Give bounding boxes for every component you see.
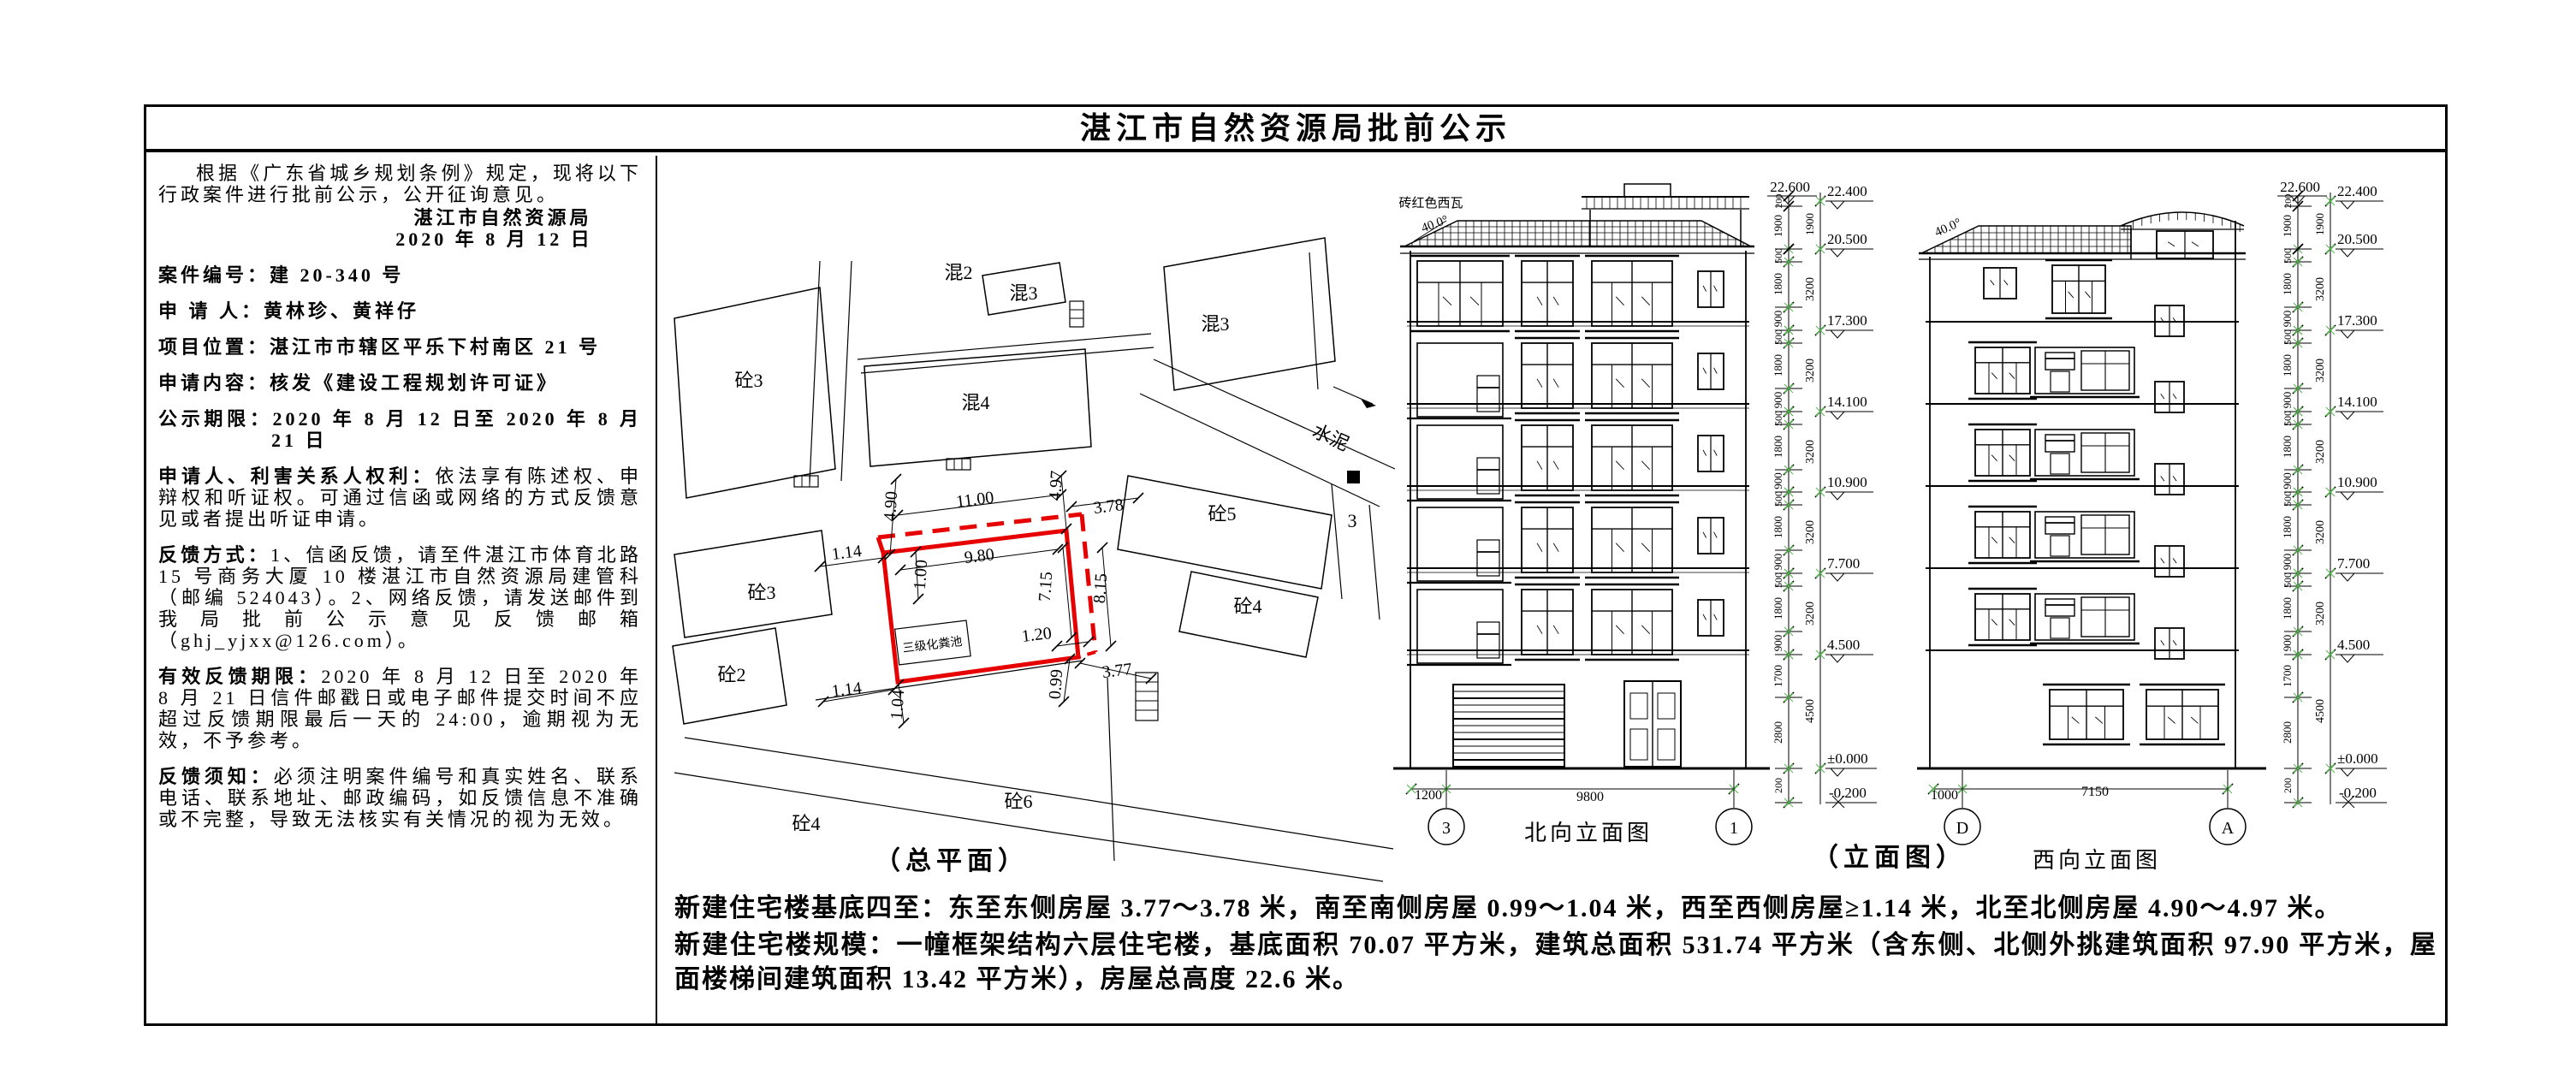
dim-south-west: 1.04 — [887, 689, 908, 720]
para-label: 有效反馈期限： — [158, 666, 321, 687]
announcement-page: { "title": "湛江市自然资源局批前公示", "left_panel":… — [0, 0, 2576, 1091]
bldg-label: 砼4 — [792, 813, 820, 834]
dim-west-inner: 1.00 — [911, 559, 931, 590]
svg-text:900: 900 — [1772, 472, 1784, 489]
notice-text-panel: 根据《广东省城乡规划条例》规定，现将以下行政案件进行批前公示，公开征询意见。 湛… — [146, 156, 657, 1023]
para-label: 反馈方式： — [158, 544, 270, 566]
summary-setbacks-label: 新建住宅楼基底四至： — [674, 894, 948, 922]
svg-text:4.500: 4.500 — [2337, 637, 2370, 653]
svg-text:4500: 4500 — [1804, 699, 1817, 723]
svg-text:500: 500 — [2282, 491, 2294, 507]
svg-text:1800: 1800 — [2281, 436, 2294, 458]
field-value: 湛江市市辖区平乐下村南区 21 号 — [270, 336, 601, 358]
summary-setbacks-text: 东至东侧房屋 3.77～3.78 米，南至南侧房屋 0.99～1.04 米，西至… — [948, 894, 2342, 922]
svg-text:1800: 1800 — [1772, 597, 1784, 620]
field-value: 黄林珍、黄祥仔 — [264, 300, 419, 322]
north-elevation-drawing — [1393, 184, 1770, 845]
bldg-label: 砼5 — [1208, 503, 1236, 525]
dim-east-south: 3.77 — [1101, 660, 1133, 682]
svg-text:4500: 4500 — [2314, 699, 2327, 723]
para-feedback-notes: 反馈须知：必须注明案件编号和真实姓名、联系电话、联系地址、邮政编码，如反馈信息不… — [158, 766, 642, 830]
field-period: 公示期限：2020 年 8 月 12 日至 2020 年 8 月 21 日 — [158, 408, 642, 451]
field-content: 申请内容：核发《建设工程规划许可证》 — [158, 372, 642, 394]
svg-text:22.400: 22.400 — [2337, 183, 2377, 199]
west-elevation-name: 西向立面图 — [2033, 848, 2161, 873]
field-value: 2020 年 8 月 12 日至 2020 年 8 月 21 日 — [271, 408, 642, 451]
svg-text:-0.200: -0.200 — [1829, 785, 1867, 801]
svg-text:200: 200 — [2282, 778, 2294, 793]
summary-scale: 新建住宅楼规模：一幢框架结构六层住宅楼，基底面积 70.07 平方米，建筑总面积… — [674, 928, 2437, 997]
svg-text:3200: 3200 — [2314, 520, 2327, 544]
svg-text:1800: 1800 — [2281, 597, 2294, 620]
svg-text:1700: 1700 — [1772, 665, 1784, 687]
dim-east-north: 3.78 — [1093, 495, 1125, 518]
svg-text:3200: 3200 — [2314, 440, 2327, 464]
summary-scale-text: 一幢框架结构六层住宅楼，基底面积 70.07 平方米，建筑总面积 531.74 … — [674, 931, 2437, 993]
svg-text:1800: 1800 — [1772, 516, 1784, 538]
para-feedback-method: 反馈方式：1、信函反馈，请至件湛江市体育北路 15 号商务大厦 10 楼湛江市自… — [158, 544, 642, 651]
field-value: 核发《建设工程规划许可证》 — [270, 372, 559, 394]
svg-text:500: 500 — [1772, 491, 1784, 507]
svg-text:500: 500 — [2282, 248, 2294, 264]
svg-text:3200: 3200 — [1804, 277, 1817, 301]
svg-text:1900: 1900 — [1803, 213, 1816, 235]
svg-text:7.700: 7.700 — [2337, 555, 2370, 572]
svg-text:900: 900 — [1772, 635, 1784, 652]
svg-text:500: 500 — [1772, 248, 1784, 264]
field-label: 申 请 人： — [158, 300, 264, 322]
svg-text:900: 900 — [1772, 554, 1784, 571]
summary-text: 新建住宅楼基底四至：东至东侧房屋 3.77～3.78 米，南至南侧房屋 0.99… — [674, 892, 2437, 999]
septic-tank-label: 三级化粪池 — [902, 635, 963, 655]
site-plan-drawing — [673, 238, 1395, 881]
west-elevation-drawing — [1917, 212, 2266, 845]
dim-inner-depth: 7.15 — [1036, 571, 1056, 602]
dim-east-corner: 1.20 — [1021, 624, 1053, 646]
road-label-cement: 水泥 — [1309, 420, 1352, 455]
field-label: 案件编号： — [158, 264, 270, 286]
dim-west-upper: 1.14 — [831, 542, 863, 564]
svg-text:14.100: 14.100 — [2337, 394, 2377, 410]
field-label: 项目位置： — [158, 336, 270, 358]
svg-text:±0.000: ±0.000 — [2337, 750, 2378, 767]
svg-text:500: 500 — [1772, 329, 1784, 345]
svg-text:2800: 2800 — [2281, 721, 2294, 744]
svg-text:14.100: 14.100 — [1827, 394, 1867, 410]
plans-and-elevations: 22.60022.40020.50017.30014.10010.9007.70… — [655, 157, 2448, 890]
dim-1200: 1200 — [1415, 788, 1442, 803]
svg-text:900: 900 — [1772, 392, 1784, 409]
axis-bubble-D: D — [1956, 819, 1968, 838]
level-dimension-ladders: 22.60022.40020.50017.30014.10010.9007.70… — [1767, 179, 2387, 808]
svg-text:900: 900 — [2281, 311, 2294, 328]
svg-text:-0.200: -0.200 — [2339, 785, 2377, 801]
summary-setbacks: 新建住宅楼基底四至：东至东侧房屋 3.77～3.78 米，南至南侧房屋 0.99… — [674, 892, 2437, 926]
svg-text:3200: 3200 — [1804, 520, 1817, 544]
dim-9800: 9800 — [1576, 790, 1604, 804]
svg-text:500: 500 — [1772, 572, 1784, 588]
bldg-label: 砼2 — [717, 664, 745, 685]
svg-text:±0.000: ±0.000 — [1827, 750, 1868, 767]
svg-text:7.700: 7.700 — [1827, 555, 1860, 572]
dim-inner-width: 9.80 — [964, 545, 995, 567]
roof-material-note: 砖红色西瓦 — [1398, 196, 1463, 210]
svg-text:1800: 1800 — [1772, 354, 1784, 377]
svg-text:1800: 1800 — [1772, 436, 1784, 458]
svg-text:3200: 3200 — [1804, 359, 1817, 382]
svg-text:22.600: 22.600 — [1770, 179, 1810, 195]
field-label: 公示期限： — [158, 408, 273, 430]
svg-text:900: 900 — [2281, 554, 2294, 571]
svg-text:1700: 1700 — [2281, 665, 2294, 687]
bldg-label: 砼6 — [1004, 791, 1032, 812]
bldg-label: 混2 — [944, 262, 972, 283]
svg-text:500: 500 — [2282, 329, 2294, 345]
field-label: 申请内容： — [158, 372, 270, 394]
notice-date: 2020 年 8 月 12 日 — [158, 228, 642, 250]
page-title: 湛江市自然资源局批前公示 — [146, 107, 2445, 152]
svg-text:1900: 1900 — [2313, 213, 2326, 235]
bldg-label: 砼4 — [1233, 596, 1261, 617]
notice-intro: 根据《广东省城乡规划条例》规定，现将以下行政案件进行批前公示，公开征询意见。 — [158, 163, 642, 205]
svg-text:1800: 1800 — [1772, 273, 1784, 295]
svg-text:2800: 2800 — [1772, 721, 1784, 744]
axis-bubble-1: 1 — [1730, 819, 1738, 838]
svg-text:22.600: 22.600 — [2280, 179, 2320, 195]
svg-text:900: 900 — [1772, 311, 1784, 328]
dim-north-total: 11.00 — [955, 488, 995, 511]
svg-text:10.900: 10.900 — [2337, 474, 2377, 490]
svg-text:3200: 3200 — [1804, 440, 1817, 464]
svg-text:17.300: 17.300 — [2337, 312, 2377, 329]
svg-text:20.500: 20.500 — [2337, 231, 2377, 247]
para-label: 反馈须知： — [158, 766, 274, 787]
bldg-label: 混4 — [961, 392, 989, 413]
bldg-label: 混3 — [1201, 313, 1229, 335]
axis-bubble-3: 3 — [1442, 819, 1451, 838]
svg-text:500: 500 — [1772, 411, 1784, 426]
svg-text:1800: 1800 — [2281, 354, 2294, 377]
svg-text:3200: 3200 — [2314, 359, 2327, 382]
bldg-label: 砼3 — [747, 582, 775, 603]
svg-text:1800: 1800 — [2281, 516, 2294, 538]
para-label: 申请人、利害关系人权利： — [158, 465, 435, 487]
site-plan-caption: （总平面） — [875, 846, 1029, 875]
svg-text:4.500: 4.500 — [1827, 637, 1860, 653]
agency-name: 湛江市自然资源局 — [158, 207, 642, 228]
summary-scale-label: 新建住宅楼规模： — [674, 931, 896, 959]
dim-south-east: 0.99 — [1046, 668, 1066, 699]
axis-bubble-A: A — [2222, 819, 2235, 838]
svg-text:900: 900 — [2281, 635, 2294, 652]
svg-text:22.400: 22.400 — [1827, 183, 1867, 199]
svg-text:10.900: 10.900 — [1827, 474, 1867, 490]
svg-text:1800: 1800 — [2281, 273, 2294, 295]
north-elevation-name: 北向立面图 — [1524, 821, 1653, 845]
para-feedback-deadline: 有效反馈期限：2020 年 8 月 12 日至 2020 年 8 月 21 日信… — [158, 666, 642, 751]
dim-overhang-depth: 8.15 — [1090, 572, 1111, 603]
dim-north-west: 4.90 — [881, 490, 901, 521]
svg-text:20.500: 20.500 — [1827, 231, 1867, 247]
field-location: 项目位置：湛江市市辖区平乐下村南区 21 号 — [158, 336, 642, 358]
field-applicant: 申 请 人：黄林珍、黄祥仔 — [158, 300, 642, 322]
svg-text:200: 200 — [1774, 193, 1784, 208]
svg-text:200: 200 — [1772, 778, 1784, 793]
svg-text:3200: 3200 — [2314, 277, 2327, 301]
svg-text:900: 900 — [2281, 472, 2294, 489]
svg-text:500: 500 — [2282, 411, 2294, 426]
roof-angle-west: 40.0° — [1932, 216, 1963, 240]
svg-text:3200: 3200 — [1804, 602, 1817, 626]
svg-text:17.300: 17.300 — [1827, 312, 1867, 329]
field-case-no: 案件编号：建 20-340 号 — [158, 264, 642, 286]
para-rights: 申请人、利害关系人权利：依法享有陈述权、申辩权和听证权。可通过信函或网络的方式反… — [158, 465, 642, 530]
svg-text:1900: 1900 — [2281, 215, 2294, 237]
dim-north-east: 4.97 — [1046, 470, 1066, 501]
field-value: 建 20-340 号 — [270, 264, 404, 286]
dim-7150: 7150 — [2081, 785, 2109, 799]
svg-text:1900: 1900 — [1772, 215, 1784, 237]
bldg-label: 砼3 — [734, 370, 763, 391]
dim-west-lower: 1.14 — [831, 679, 863, 701]
svg-text:900: 900 — [2281, 392, 2294, 409]
road-number: 3 — [1348, 510, 1357, 531]
svg-text:3200: 3200 — [2314, 602, 2327, 626]
svg-text:200: 200 — [2283, 193, 2294, 208]
bldg-label: 混3 — [1009, 282, 1037, 304]
svg-text:500: 500 — [2282, 572, 2294, 588]
dim-1000: 1000 — [1931, 788, 1958, 803]
elevations-caption: （立面图） — [1813, 843, 1967, 872]
